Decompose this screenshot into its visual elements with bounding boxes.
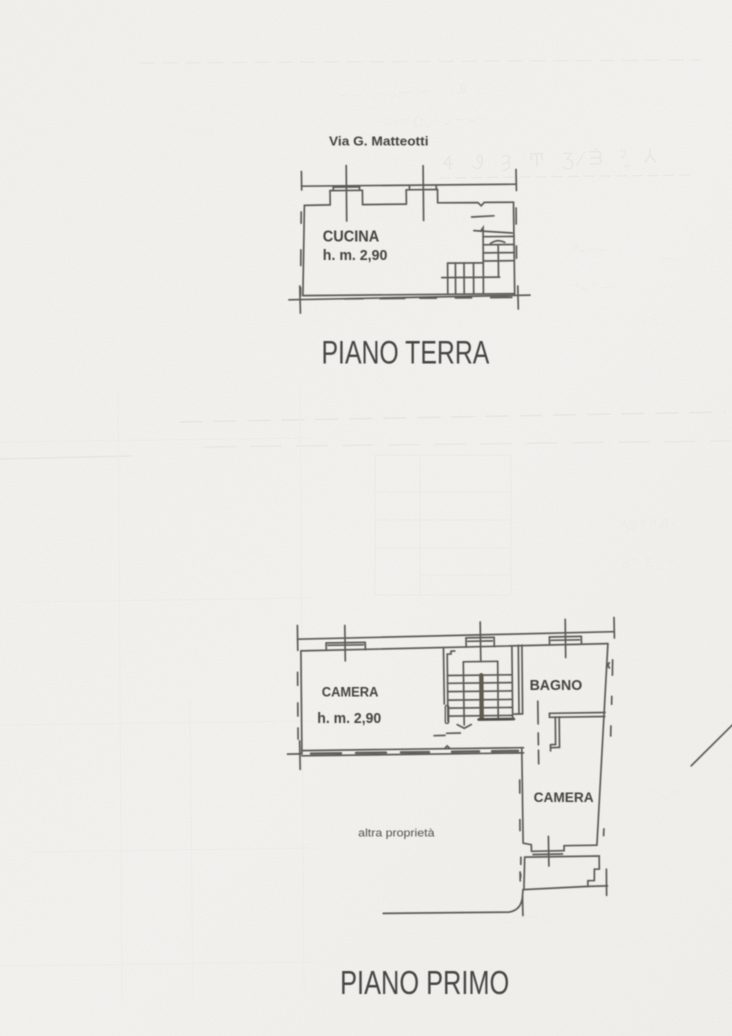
svg-text:BAGNO: BAGNO [530,678,583,694]
svg-text:h. m. 2,90: h. m. 2,90 [317,710,381,727]
svg-text:Via G. Matteotti: Via G. Matteotti [329,134,429,148]
svg-text:ᵕ⌵ᵕ: ᵕ⌵ᵕ [620,935,640,951]
svg-text:PIANO PRIMO: PIANO PRIMO [340,964,509,1001]
svg-text:ᴹ̱Ꮚ ᵝ ᴹ Ꭿ∼: ᴹ̱Ꮚ ᵝ ᴹ Ꭿ∼ [619,515,677,533]
svg-text:⌵ ᵓ̱ ‥: ⌵ ᵓ̱ ‥ [640,311,668,326]
svg-text:CUCINA: CUCINA [323,229,379,246]
svg-text:ᶜ⌄ᵔ˘ ∼ᵔ: ᶜ⌄ᵔ˘ ∼ᵔ [575,279,617,295]
svg-text:ᴲ⌄ᵕ ⁓: ᴲ⌄ᵕ ⁓ [572,241,608,257]
svg-text:altra proprietà: altra proprietà [358,828,435,840]
svg-text:ᵕ∼: ᵕ∼ [660,251,675,266]
svg-text:PIANO TERRA: PIANO TERRA [322,335,490,371]
svg-text:CAMERA: CAMERA [534,790,594,805]
svg-text:CAMERA: CAMERA [322,684,379,700]
svg-text:⌃⌄ᵐ˘: ⌃⌄ᵐ˘ [650,787,684,803]
svg-text:h. m. 2,90: h. m. 2,90 [323,247,388,264]
svg-text:﹏⁓ ∼﹏: ﹏⁓ ∼﹏ [500,908,554,925]
